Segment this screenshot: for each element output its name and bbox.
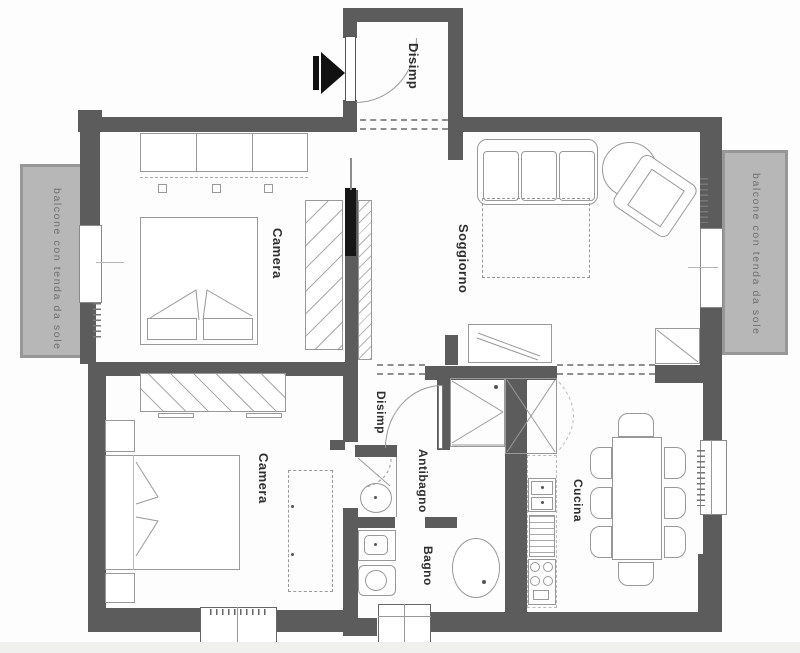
rug <box>482 198 590 278</box>
wardrobe-front-dashed <box>140 177 308 178</box>
cabinet-dot-2 <box>291 553 294 556</box>
opening-kitchen-b <box>557 373 655 375</box>
wall-vestibule-left-upper <box>343 8 357 38</box>
chair-right-1 <box>664 447 686 479</box>
dining-table <box>612 437 662 560</box>
label-kitchen: Cucina <box>571 479 585 522</box>
opening-vestibule-b <box>360 128 448 130</box>
chair-left-3 <box>590 526 612 558</box>
wardrobe-divider-1 <box>196 134 197 171</box>
wardrobe-bedroom2 <box>140 373 286 412</box>
sofa-cushion-3 <box>559 151 595 201</box>
stove-burner-4 <box>543 576 553 586</box>
chair-left-2 <box>590 487 612 519</box>
radiator-left <box>93 303 101 340</box>
wall-a-doorjamb <box>330 440 345 450</box>
nightstand-bottom <box>105 573 135 603</box>
bath-wc-bowl <box>365 570 387 591</box>
radiator-kitchen <box>697 450 705 506</box>
wall-top-right <box>448 117 722 132</box>
wardrobe-knob-2 <box>212 184 221 193</box>
kitchen-dishwasher <box>529 515 555 557</box>
wardrobe2-rail-2 <box>246 413 282 418</box>
stove-burner-1 <box>530 562 540 572</box>
kitchen-corner-pantry <box>505 378 557 454</box>
window-bathroom-mullion <box>404 604 405 644</box>
wall-bottom-mid <box>275 610 345 632</box>
wc-basin-drain <box>374 496 377 499</box>
opening-hall-a <box>377 364 425 366</box>
label-entry-hall: Disimp <box>406 43 421 89</box>
door-guide-line <box>350 158 352 190</box>
closet-bedroom1 <box>305 200 343 350</box>
chair-left-1 <box>590 447 612 479</box>
shower-dot <box>494 385 498 389</box>
window-kitchen-mullion <box>711 440 712 515</box>
wardrobe-bedroom1 <box>140 133 308 172</box>
entry-door-leaf <box>345 36 356 102</box>
wall-right-kitchen-lower <box>703 514 722 554</box>
sliding-door-bedroom <box>345 188 356 256</box>
tv-bench <box>468 324 552 363</box>
label-inner-hall: Disimp <box>374 391 388 434</box>
wall-left-lower <box>88 362 106 612</box>
wall-a-foot <box>343 618 377 636</box>
wall-stub-livingroom <box>445 335 458 365</box>
window-bedroom2-hatch <box>210 609 268 615</box>
wall-right-block <box>655 365 722 383</box>
sofa-cushion-2 <box>521 151 557 201</box>
kitchen-sink-drain-1 <box>541 486 544 489</box>
stove-burner-3 <box>530 576 540 586</box>
wall-right-kitchen-upper <box>703 383 722 441</box>
window-bedroom2-mullion <box>237 607 238 644</box>
wardrobe-knob-1 <box>158 184 167 193</box>
nightstand-top <box>105 420 135 452</box>
pillow-bedroom1-left <box>147 318 197 340</box>
label-balcony-left: balcone con tenda da sole <box>51 188 63 351</box>
label-bedroom-second: Camera <box>256 453 271 504</box>
stove-burner-2 <box>543 562 553 572</box>
bath-sink-drain <box>374 543 377 546</box>
wall-vestibule-top <box>343 8 463 22</box>
opening-hall-b <box>377 373 425 375</box>
french-door-right-balcony <box>700 228 723 308</box>
shelf-livingroom-side <box>358 200 372 360</box>
wall-bath-2 <box>425 517 457 528</box>
french-door-left-balcony <box>79 225 102 303</box>
wall-vestibule-right <box>448 8 463 160</box>
pillow-bedroom1-right <box>203 318 253 340</box>
entry-arrow-bar-icon <box>313 56 319 90</box>
wall-top-left <box>98 117 345 132</box>
cabinet-dot-1 <box>291 505 294 508</box>
wall-a-upper <box>343 362 358 442</box>
bathtub-drain <box>482 580 486 584</box>
corner-closet-livingroom <box>655 328 700 364</box>
wall-vestibule-left-lower <box>343 100 357 132</box>
label-bathroom: Bagno <box>421 546 435 586</box>
door-axis-left <box>96 262 124 263</box>
wardrobe-knob-3 <box>264 184 273 193</box>
bathtub <box>452 538 500 598</box>
wall-bottom-left <box>88 608 202 632</box>
wall-right-mid <box>700 306 722 366</box>
cabinet-bedroom2 <box>288 470 333 592</box>
label-bedroom-main: Camera <box>270 228 285 279</box>
kitchen-sink-drain-2 <box>541 501 544 504</box>
wall-left-upper <box>80 117 100 225</box>
wardrobe2-rail-1 <box>158 413 194 418</box>
page-bottom-strip <box>0 642 800 653</box>
radiator-livingroom <box>700 178 708 223</box>
door-axis-right <box>688 267 718 268</box>
chair-right-2 <box>664 487 686 519</box>
label-balcony-right: balcone con tenda da sole <box>750 173 762 336</box>
opening-kitchen-a <box>557 364 655 366</box>
hall-door-swing <box>385 385 442 448</box>
wc-room-wall-thin <box>396 457 397 517</box>
floor-plan: Disimp Camera Soggiorno Camera Disimp An… <box>0 0 800 653</box>
wall-bottom-right <box>428 612 722 632</box>
opening-vestibule-a <box>360 119 448 121</box>
bed-bedroom2 <box>105 455 240 570</box>
wardrobe-divider-2 <box>252 134 253 171</box>
label-antechamber: Antibagno <box>416 449 430 513</box>
chair-bottom <box>618 562 654 586</box>
sofa-cushion-1 <box>483 151 519 201</box>
wall-bath-1 <box>343 517 395 528</box>
stove-panel <box>533 590 549 600</box>
entry-arrow-icon <box>321 52 345 94</box>
label-living-room: Soggiorno <box>456 224 471 294</box>
chair-top <box>618 413 654 437</box>
chair-right-3 <box>664 526 686 558</box>
bed2-headboard-line <box>133 455 134 570</box>
